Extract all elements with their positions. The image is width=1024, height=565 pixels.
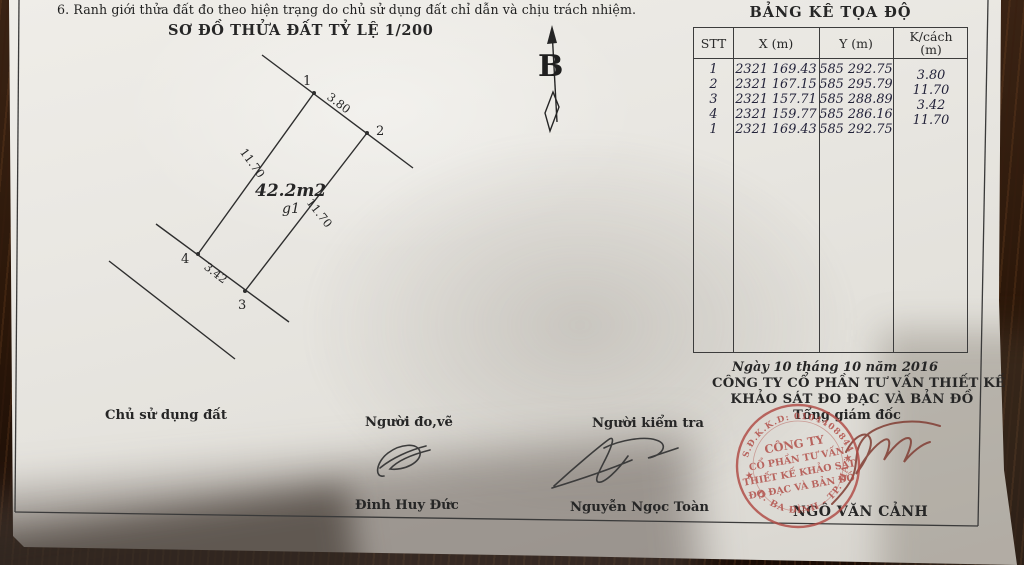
plot-edge-2-3 — [245, 133, 367, 291]
plot-area-label: 42.2m2 — [255, 181, 326, 201]
signature-nguyen-ngoc-toan — [548, 430, 683, 490]
cell-x: 2321 169.43 — [733, 122, 819, 137]
role-checker: Người kiểm tra — [592, 416, 704, 431]
header-stt: STT — [694, 36, 733, 51]
corner-label-1: 1 — [303, 74, 311, 89]
header-y: Y (m) — [819, 36, 893, 51]
coordinate-table: STT X (m) Y (m) K/cách (m) 1 2 3 4 1 232… — [693, 27, 968, 353]
corner-label-2: 2 — [376, 124, 384, 139]
cell-x: 2321 167.15 — [733, 77, 819, 92]
cell-y: 585 292.75 — [819, 122, 893, 137]
cell-stt: 3 — [694, 92, 733, 107]
role-land-user: Chủ sử dụng đất — [105, 408, 227, 423]
coordinate-table-title: BẢNG KÊ TỌA ĐỘ — [693, 4, 968, 21]
cell-y: 585 295.79 — [819, 77, 893, 92]
boundary-note: 6. Ranh giới thửa đất đo theo hiện trạng… — [57, 2, 636, 17]
cell-y: 585 288.89 — [819, 92, 893, 107]
cell-x: 2321 169.43 — [733, 62, 819, 77]
cell-stt: 2 — [694, 77, 733, 92]
table-header-separator — [694, 58, 967, 59]
seal-group: S.Đ.K.K.D: 0104408844 Q. BA ĐÌNH - TP. H… — [722, 392, 869, 540]
signature-dinh-huy-duc — [370, 438, 440, 483]
cell-distance: 3.42 — [893, 98, 969, 113]
corner-label-3: 3 — [238, 298, 246, 313]
company-name-line1: CÔNG TY CỔ PHẦN TƯ VẤN THIẾT KẾ — [712, 376, 992, 391]
north-arrow-diamond-icon — [545, 92, 559, 131]
cell-distance: 11.70 — [893, 113, 969, 128]
checker-name: Nguyễn Ngọc Toàn — [570, 500, 709, 515]
north-label: B — [538, 49, 563, 84]
map-title: SƠ ĐỒ THỬA ĐẤT TỶ LỆ 1/200 — [168, 22, 433, 39]
header-k-line2: (m) — [893, 42, 969, 57]
plot-sub-label: g1 — [282, 201, 300, 217]
cell-y: 585 286.16 — [819, 107, 893, 122]
plot-boundary-lines — [109, 55, 413, 359]
cell-stt: 1 — [694, 62, 733, 77]
corner-label-4: 4 — [181, 252, 189, 267]
north-arrow-head-icon — [547, 25, 557, 44]
surveyor-name: Đinh Huy Đức — [355, 498, 459, 513]
date-line: Ngày 10 tháng 10 năm 2016 — [715, 360, 955, 375]
cell-distance: 3.80 — [893, 68, 969, 83]
photo-of-survey-document: { "page": { "note_line": "6. Ranh giới t… — [0, 0, 1024, 565]
cell-x: 2321 159.77 — [733, 107, 819, 122]
cell-stt: 4 — [694, 107, 733, 122]
cell-x: 2321 157.71 — [733, 92, 819, 107]
role-surveyor: Người đo,vẽ — [365, 415, 453, 430]
header-x: X (m) — [733, 36, 819, 51]
cell-distance: 11.70 — [893, 83, 969, 98]
company-seal: S.Đ.K.K.D: 0104408844 Q. BA ĐÌNH - TP. H… — [722, 392, 878, 544]
cell-y: 585 292.75 — [819, 62, 893, 77]
cell-stt: 1 — [694, 122, 733, 137]
